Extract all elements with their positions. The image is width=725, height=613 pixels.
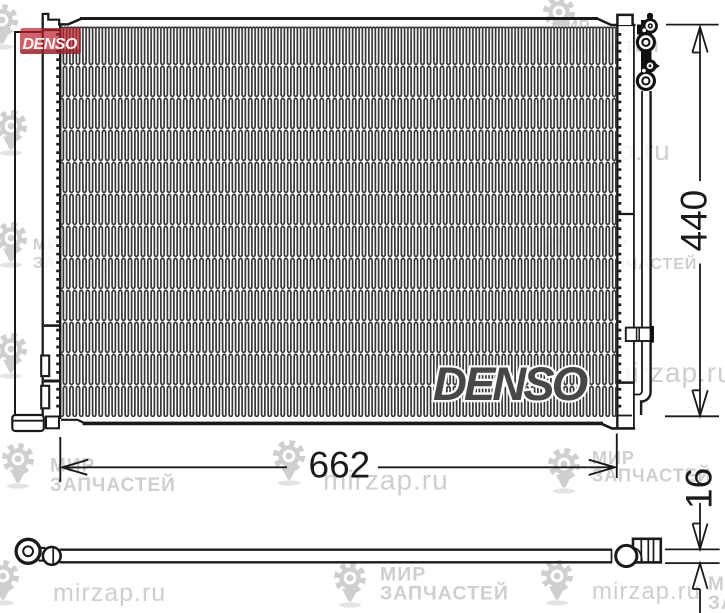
svg-text:DENSO: DENSO [23, 36, 78, 53]
svg-text:16: 16 [679, 468, 720, 509]
svg-text:ЗАПЧАСТЕЙ: ЗАПЧАСТЕЙ [380, 581, 509, 605]
svg-text:ЗАПЧ: ЗАПЧ [708, 593, 725, 613]
svg-text:МИР: МИР [708, 574, 725, 595]
svg-text:ЗАПЧАСТЕЙ: ЗАПЧАСТЕЙ [50, 474, 176, 496]
svg-text:МИР: МИР [50, 456, 95, 477]
svg-text:mirzap.ru: mirzap.ru [53, 579, 166, 607]
svg-text:440: 440 [674, 190, 715, 252]
svg-text:DENSO: DENSO [433, 357, 588, 410]
svg-text:mirzap.ru: mirzap.ru [592, 578, 701, 605]
svg-text:662: 662 [309, 445, 371, 486]
